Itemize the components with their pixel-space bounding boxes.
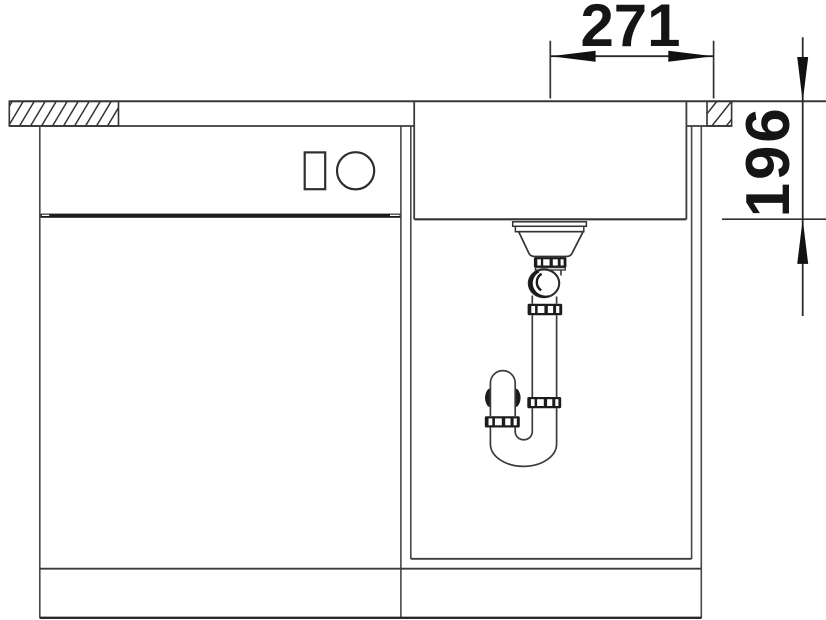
svg-text:196: 196 — [734, 105, 803, 217]
svg-text:271: 271 — [580, 0, 680, 59]
